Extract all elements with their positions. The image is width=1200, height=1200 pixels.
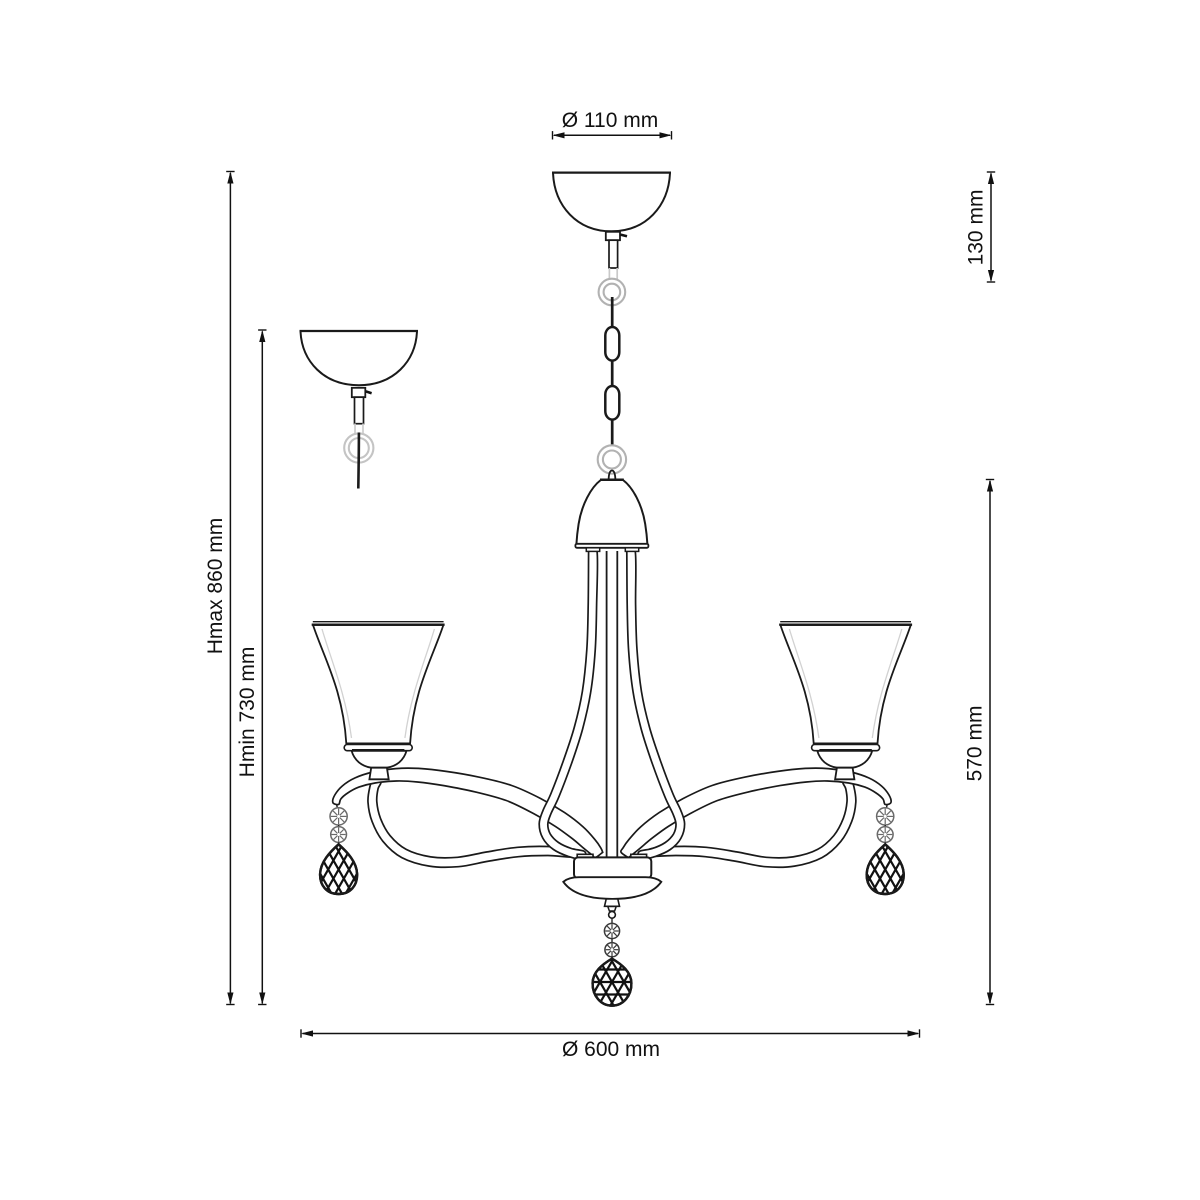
svg-text:570 mm: 570 mm (964, 706, 987, 782)
svg-text:130 mm: 130 mm (965, 190, 988, 266)
svg-text:Hmax 860 mm: Hmax 860 mm (204, 518, 227, 655)
svg-text:Hmin 730 mm: Hmin 730 mm (236, 647, 259, 778)
svg-text:Ø 110 mm: Ø 110 mm (562, 109, 658, 132)
svg-text:Ø 600 mm: Ø 600 mm (562, 1038, 660, 1061)
